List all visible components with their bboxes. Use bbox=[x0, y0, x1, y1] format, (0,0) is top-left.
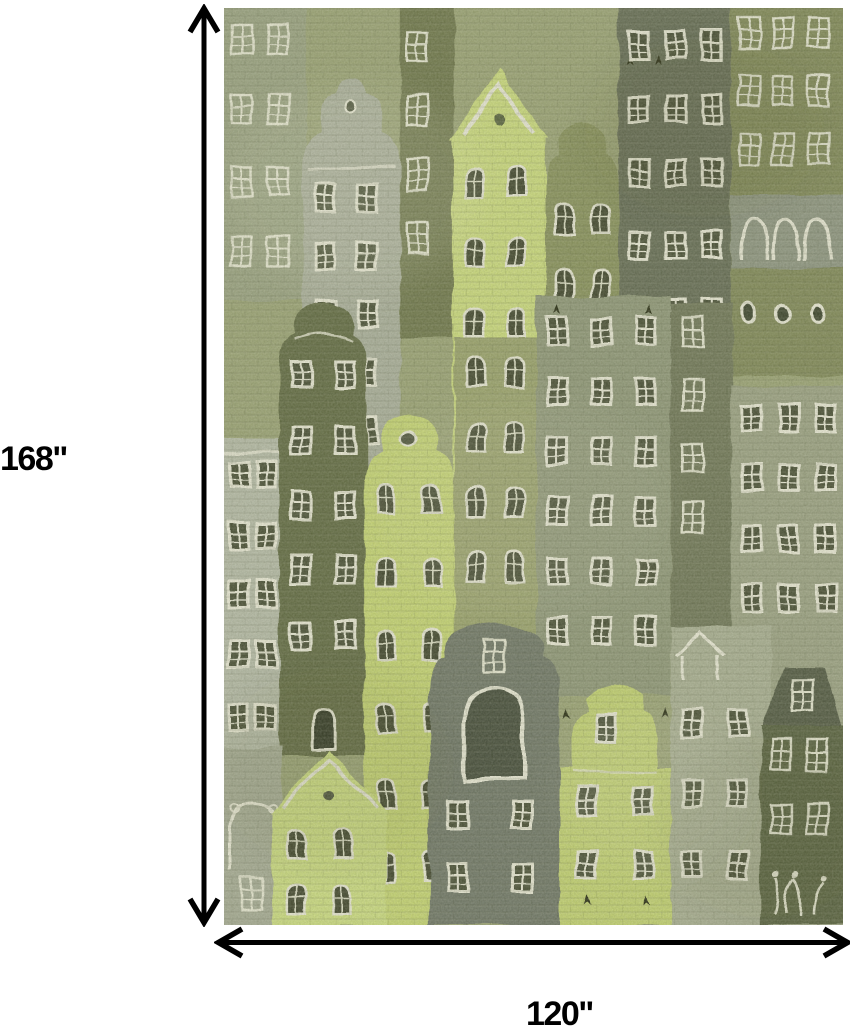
width-dimension-label: 120" bbox=[526, 995, 593, 1034]
product-dimension-figure: 168" 120" bbox=[0, 0, 850, 1029]
rug-texture-overlay bbox=[224, 8, 843, 925]
height-dimension-label: 168" bbox=[0, 440, 67, 479]
rug-image bbox=[224, 8, 843, 925]
height-dimension-arrow bbox=[185, 4, 223, 927]
width-dimension-arrow bbox=[214, 924, 850, 962]
rug-illustration bbox=[224, 8, 843, 925]
